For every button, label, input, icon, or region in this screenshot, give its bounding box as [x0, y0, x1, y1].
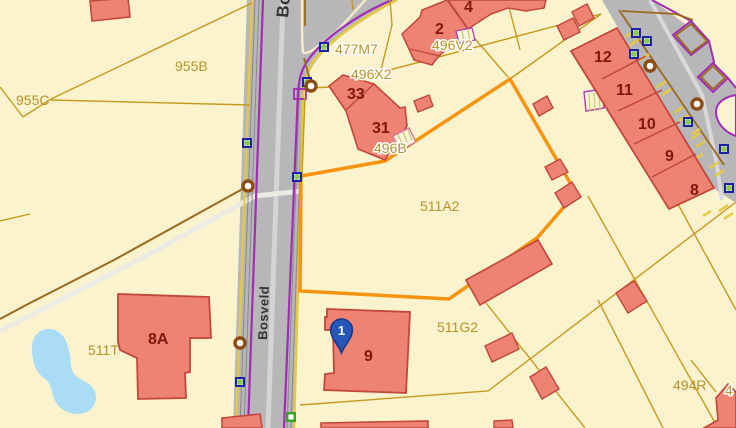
svg-text:496B: 496B	[374, 140, 407, 156]
svg-text:511T: 511T	[88, 342, 119, 358]
svg-text:477M7: 477M7	[335, 41, 378, 57]
svg-text:1: 1	[338, 323, 345, 338]
svg-text:9: 9	[364, 348, 373, 365]
svg-text:496V2: 496V2	[432, 37, 473, 53]
svg-text:494R: 494R	[673, 377, 706, 393]
svg-text:12: 12	[594, 49, 612, 66]
svg-text:Bosveld: Bosveld	[255, 286, 272, 341]
svg-text:11: 11	[616, 82, 633, 99]
svg-text:2: 2	[435, 21, 444, 38]
svg-text:31: 31	[372, 120, 390, 137]
svg-text:4: 4	[464, 0, 473, 16]
svg-text:511G2: 511G2	[437, 319, 478, 335]
svg-text:10: 10	[638, 116, 656, 133]
svg-text:8A: 8A	[148, 331, 169, 348]
svg-text:8: 8	[690, 182, 699, 199]
svg-text:4: 4	[725, 382, 733, 398]
svg-text:33: 33	[347, 86, 365, 103]
svg-text:955B: 955B	[175, 58, 208, 74]
svg-text:9: 9	[665, 148, 674, 165]
svg-text:955C: 955C	[16, 92, 49, 108]
svg-text:511A2: 511A2	[420, 198, 460, 214]
svg-text:496X2: 496X2	[351, 66, 392, 82]
